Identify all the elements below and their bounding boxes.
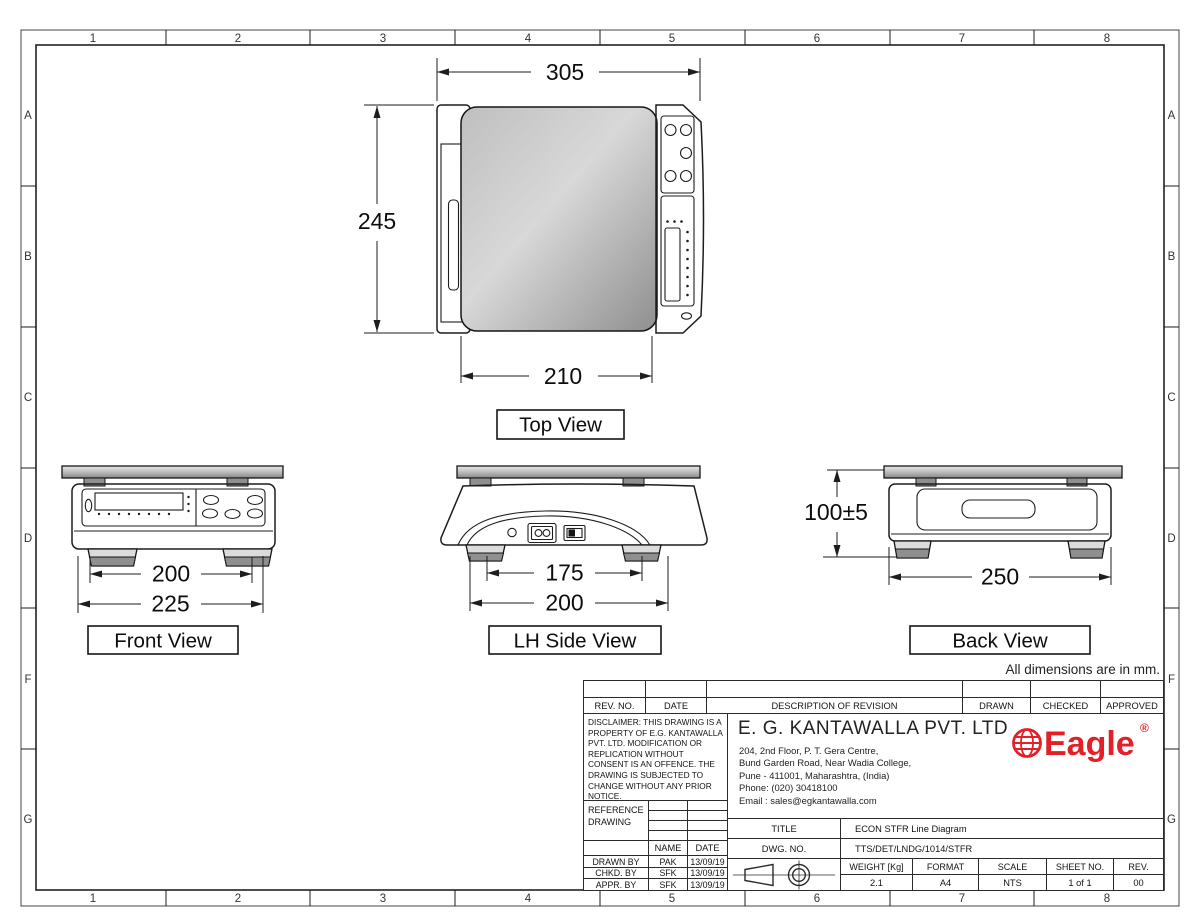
- disclaimer-text: DISCLAIMER: THIS DRAWING IS A PROPERTY O…: [583, 713, 728, 801]
- dc-jack-icon: [508, 528, 516, 536]
- revision-header-checked: CHECKED: [1030, 697, 1101, 714]
- dim-top-platter: 210: [544, 363, 582, 389]
- name-header: NAME: [648, 840, 688, 856]
- front-key: [204, 496, 219, 505]
- eagle-logo-text: Eagle: [1044, 725, 1135, 763]
- company-block: E. G. KANTAWALLA PVT. LTD 204, 2nd Floor…: [727, 713, 1164, 819]
- svg-text:D: D: [1167, 533, 1175, 545]
- svg-text:A: A: [24, 110, 32, 122]
- svg-text:3: 3: [380, 893, 386, 905]
- reference-label-line: DRAWING: [588, 817, 631, 827]
- revision-header-approved: APPROVED: [1100, 697, 1164, 714]
- top-view-label: Top View: [519, 414, 602, 437]
- svg-text:G: G: [1167, 814, 1176, 826]
- svg-text:6: 6: [814, 893, 820, 905]
- svg-text:2: 2: [235, 893, 241, 905]
- spec-header-format: FORMAT: [912, 858, 979, 875]
- svg-text:F: F: [1168, 674, 1175, 686]
- signoff-corner-cell: [583, 840, 649, 856]
- company-address-line: Phone: (020) 30418100: [739, 782, 911, 794]
- back-view-label: Back View: [952, 630, 1048, 653]
- svg-text:8: 8: [1104, 33, 1110, 45]
- front-display: [95, 493, 183, 510]
- units-note: All dimensions are in mm.: [1005, 662, 1160, 677]
- key-button: [681, 125, 692, 136]
- projection-symbol-cell: [727, 858, 841, 891]
- front-key: [225, 510, 240, 519]
- back-body: [889, 484, 1111, 541]
- third-angle-projection-icon: [729, 859, 839, 890]
- svg-text:1: 1: [90, 33, 96, 45]
- front-key: [248, 496, 263, 505]
- spec-header-rev: REV.: [1113, 858, 1164, 875]
- revision-empty-cell: [962, 680, 1031, 698]
- front-view: 200 225 Front View: [62, 466, 283, 654]
- svg-text:C: C: [1167, 392, 1175, 404]
- svg-text:7: 7: [959, 893, 965, 905]
- top-view-handle-slot: [449, 200, 459, 290]
- signoff-name: SFK: [648, 878, 688, 891]
- svg-text:B: B: [1168, 251, 1176, 263]
- spec-header-scale: SCALE: [978, 858, 1047, 875]
- revision-header-date: DATE: [645, 697, 707, 714]
- svg-text:F: F: [24, 674, 31, 686]
- switch-rocker: [569, 530, 576, 537]
- front-view-label: Front View: [114, 630, 212, 653]
- date-header: DATE: [687, 840, 728, 856]
- reference-label-line: REFERENCE: [588, 805, 644, 815]
- top-view-platter: [461, 107, 657, 331]
- title-label: TITLE: [727, 818, 841, 839]
- key-button: [681, 148, 692, 159]
- revision-empty-cell: [1030, 680, 1101, 698]
- back-window: [962, 500, 1035, 518]
- svg-text:5: 5: [669, 33, 675, 45]
- dim-top-width: 305: [546, 59, 584, 85]
- spec-value-rev: 00: [1113, 874, 1164, 891]
- front-key: [203, 509, 218, 518]
- svg-text:8: 8: [1104, 893, 1110, 905]
- spec-header-sheet-no: SHEET NO.: [1046, 858, 1114, 875]
- svg-text:6: 6: [814, 33, 820, 45]
- back-view: 100±5 250 Back View: [804, 466, 1122, 654]
- display-window: [665, 228, 680, 301]
- svg-text:1: 1: [90, 893, 96, 905]
- signoff-role: APPR. BY: [583, 878, 649, 891]
- power-indicator: [85, 499, 91, 511]
- revision-header-drawn: DRAWN: [962, 697, 1031, 714]
- side-view-label: LH Side View: [514, 630, 637, 653]
- eagle-logo: Eagle ®: [1007, 716, 1159, 768]
- svg-text:2: 2: [235, 33, 241, 45]
- svg-text:4: 4: [525, 33, 532, 45]
- registered-mark: ®: [1140, 721, 1149, 735]
- front-panel: [82, 489, 265, 526]
- svg-text:A: A: [1168, 110, 1176, 122]
- svg-text:D: D: [24, 533, 32, 545]
- drawing-sheet: 1 2 3 4 5 6 7 8 1 2 3 4 5 6 7 8 A B C D …: [0, 0, 1200, 924]
- key-button: [681, 171, 692, 182]
- dim-back-height: 100±5: [804, 499, 868, 525]
- dim-side-overall: 200: [545, 590, 583, 616]
- revision-header-description: DESCRIPTION OF REVISION: [706, 697, 963, 714]
- company-address: 204, 2nd Floor, P. T. Gera Centre, Bund …: [739, 745, 911, 807]
- company-address-line: Email : sales@egkantawalla.com: [739, 795, 911, 807]
- svg-text:G: G: [24, 814, 33, 826]
- revision-empty-cell: [583, 680, 646, 698]
- spec-value-weight: 2.1: [840, 874, 913, 891]
- revision-empty-cell: [706, 680, 963, 698]
- side-platter: [457, 466, 700, 478]
- company-name: E. G. KANTAWALLA PVT. LTD: [738, 718, 1008, 740]
- top-view-display-panel: [661, 196, 694, 306]
- dwg-no-label: DWG. NO.: [727, 838, 841, 859]
- spec-value-format: A4: [912, 874, 979, 891]
- svg-text:C: C: [24, 392, 32, 404]
- revision-header-rev-no: REV. NO.: [583, 697, 646, 714]
- back-platter: [884, 466, 1122, 478]
- revision-empty-cell: [645, 680, 707, 698]
- revision-empty-cell: [1100, 680, 1164, 698]
- svg-text:7: 7: [959, 33, 965, 45]
- signoff-date: 13/09/19: [687, 878, 728, 891]
- dim-side-feet: 175: [545, 560, 583, 586]
- company-address-line: Pune - 411001, Maharashtra, (India): [739, 770, 911, 782]
- spec-value-scale: NTS: [978, 874, 1047, 891]
- lh-side-view: 175 200 LH Side View: [441, 466, 707, 654]
- spec-header-weight: WEIGHT [Kg]: [840, 858, 913, 875]
- svg-text:5: 5: [669, 893, 675, 905]
- eagle-logo-graphic: Eagle ®: [1007, 716, 1159, 766]
- dim-back-width: 250: [981, 564, 1019, 590]
- key-button: [665, 171, 676, 182]
- dim-top-depth: 245: [358, 208, 396, 234]
- title-value: ECON STFR Line Diagram: [840, 818, 1164, 839]
- svg-text:3: 3: [380, 33, 386, 45]
- company-address-line: Bund Garden Road, Near Wadia College,: [739, 757, 911, 769]
- front-platter: [62, 466, 283, 478]
- top-view: 305 245 210 Top View: [358, 58, 704, 439]
- key-button: [665, 125, 676, 136]
- reference-drawing-label: REFERENCE DRAWING: [583, 800, 649, 841]
- dwg-no-value: TTS/DET/LNDG/1014/STFR: [840, 838, 1164, 859]
- svg-text:4: 4: [525, 893, 532, 905]
- dim-front-feet: 200: [152, 561, 190, 587]
- dim-front-overall: 225: [151, 591, 189, 617]
- spec-value-sheet-no: 1 of 1: [1046, 874, 1114, 891]
- front-body: [72, 484, 275, 549]
- company-address-line: 204, 2nd Floor, P. T. Gera Centre,: [739, 745, 911, 757]
- title-block: REV. NO. DATE DESCRIPTION OF REVISION DR…: [583, 680, 1165, 891]
- front-key: [248, 509, 263, 518]
- svg-text:B: B: [24, 251, 32, 263]
